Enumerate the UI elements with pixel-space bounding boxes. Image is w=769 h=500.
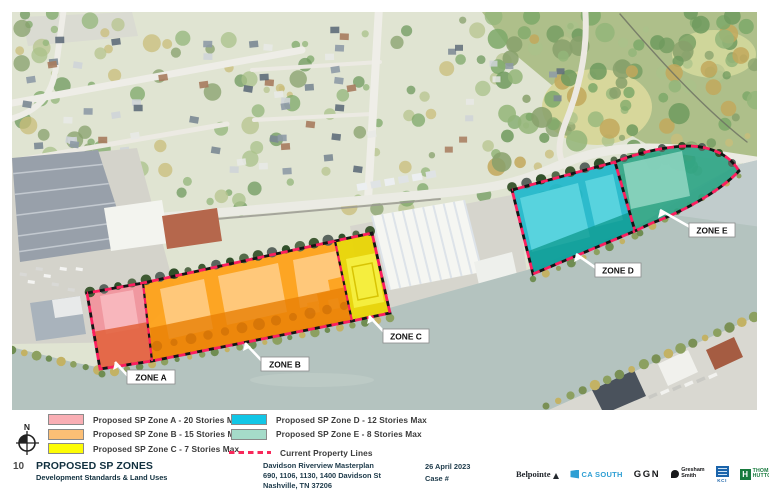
legend-label: Proposed SP Zone E - 8 Stories Max: [276, 429, 422, 439]
property-line-swatch: [229, 451, 271, 454]
logo-kci: KCI: [716, 466, 729, 483]
legend-label: Proposed SP Zone A - 20 Stories Max: [93, 415, 243, 425]
svg-text:ZONE A: ZONE A: [135, 373, 166, 383]
svg-text:ZONE E: ZONE E: [696, 226, 728, 236]
logo-thomas-hutton: HTHOMASHUTTON: [740, 469, 769, 480]
project-name: Davidson Riverview Masterplan: [263, 461, 381, 471]
case-number: Case #: [425, 473, 470, 485]
logo-belpointe: Belpointe: [516, 469, 559, 479]
zone-d-swatch: [231, 414, 267, 425]
legend-label: Proposed SP Zone C - 7 Stories Max: [93, 444, 239, 454]
legend-item-zone-a: Proposed SP Zone A - 20 Stories Max: [48, 414, 243, 425]
aerial-map-canvas: ZONE A ZONE B ZONE C ZONE D: [12, 12, 757, 410]
logo-ggn: GGN: [634, 469, 660, 480]
north-arrow: N: [16, 421, 40, 457]
svg-text:ZONE C: ZONE C: [390, 332, 422, 342]
legend-item-zone-c: Proposed SP Zone C - 7 Stories Max: [48, 443, 239, 454]
legend-label: Proposed SP Zone D - 12 Stories Max: [276, 415, 427, 425]
zone-a-swatch: [48, 414, 84, 425]
ca-south-wordmark: CA SOUTH: [581, 470, 622, 479]
legend-label: Proposed SP Zone B - 15 Stories Max: [93, 429, 244, 439]
belpointe-sail-icon: [553, 473, 559, 479]
kci-icon: [716, 466, 729, 477]
sheet-date: 26 April 2023: [425, 461, 470, 473]
svg-text:ZONE B: ZONE B: [269, 360, 301, 370]
svg-text:N: N: [24, 422, 30, 432]
logo-gresham-smith: GreshamSmith: [671, 468, 704, 479]
sheet-subtitle: Development Standards & Land Uses: [36, 473, 167, 482]
logo-ca-south: CA SOUTH: [570, 470, 622, 479]
svg-text:ZONE D: ZONE D: [602, 266, 634, 276]
warehouse-white: [104, 200, 169, 251]
aerial-map[interactable]: ZONE A ZONE B ZONE C ZONE D: [12, 12, 757, 410]
thomas-hutton-wordmark: THOMASHUTTON: [753, 469, 769, 480]
project-address: 690, 1106, 1130, 1400 Davidson St: [263, 471, 381, 481]
project-info: Davidson Riverview Masterplan 690, 1106,…: [263, 461, 381, 491]
zone-e-swatch: [231, 429, 267, 440]
project-city: Nashville, TN 37206: [263, 481, 381, 491]
legend-label: Current Property Lines: [280, 448, 373, 458]
date-block: 26 April 2023 Case #: [425, 461, 470, 485]
page-number: 10: [13, 461, 24, 472]
legend-item-zone-e: Proposed SP Zone E - 8 Stories Max: [231, 429, 422, 440]
zone-b-swatch: [48, 429, 84, 440]
gresham-smith-wordmark: GreshamSmith: [681, 468, 704, 479]
ca-south-flag-icon: [570, 470, 579, 479]
gresham-smith-icon: [671, 470, 679, 478]
masterplan-sheet: ZONE A ZONE B ZONE C ZONE D: [0, 0, 769, 500]
zone-c-swatch: [48, 443, 84, 454]
kci-wordmark: KCI: [717, 478, 727, 483]
belpointe-wordmark: Belpointe: [516, 469, 550, 479]
legend-item-zone-b: Proposed SP Zone B - 15 Stories Max: [48, 429, 244, 440]
legend-item-zone-d: Proposed SP Zone D - 12 Stories Max: [231, 414, 427, 425]
consultant-logos: Belpointe CA SOUTH GGN GreshamSmith KCI …: [516, 461, 764, 487]
ggn-wordmark: GGN: [634, 469, 660, 480]
legend-item-property-lines: Current Property Lines: [229, 447, 373, 458]
boat-wake: [250, 373, 374, 387]
sheet-title: PROPOSED SP ZONES: [36, 460, 153, 472]
thomas-hutton-icon: H: [740, 469, 751, 480]
